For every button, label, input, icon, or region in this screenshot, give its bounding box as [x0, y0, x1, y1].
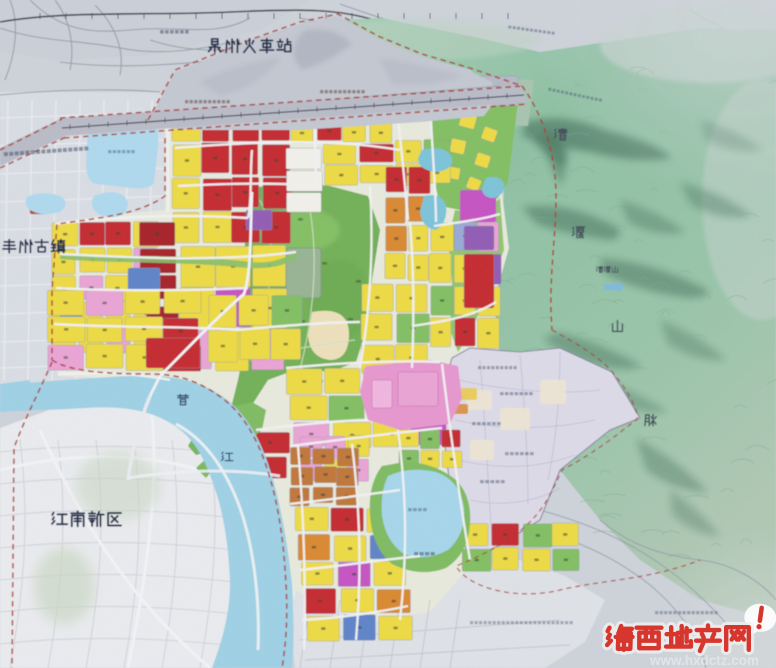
svg-text:www.hxdctz.com: www.hxdctz.com: [649, 653, 759, 668]
